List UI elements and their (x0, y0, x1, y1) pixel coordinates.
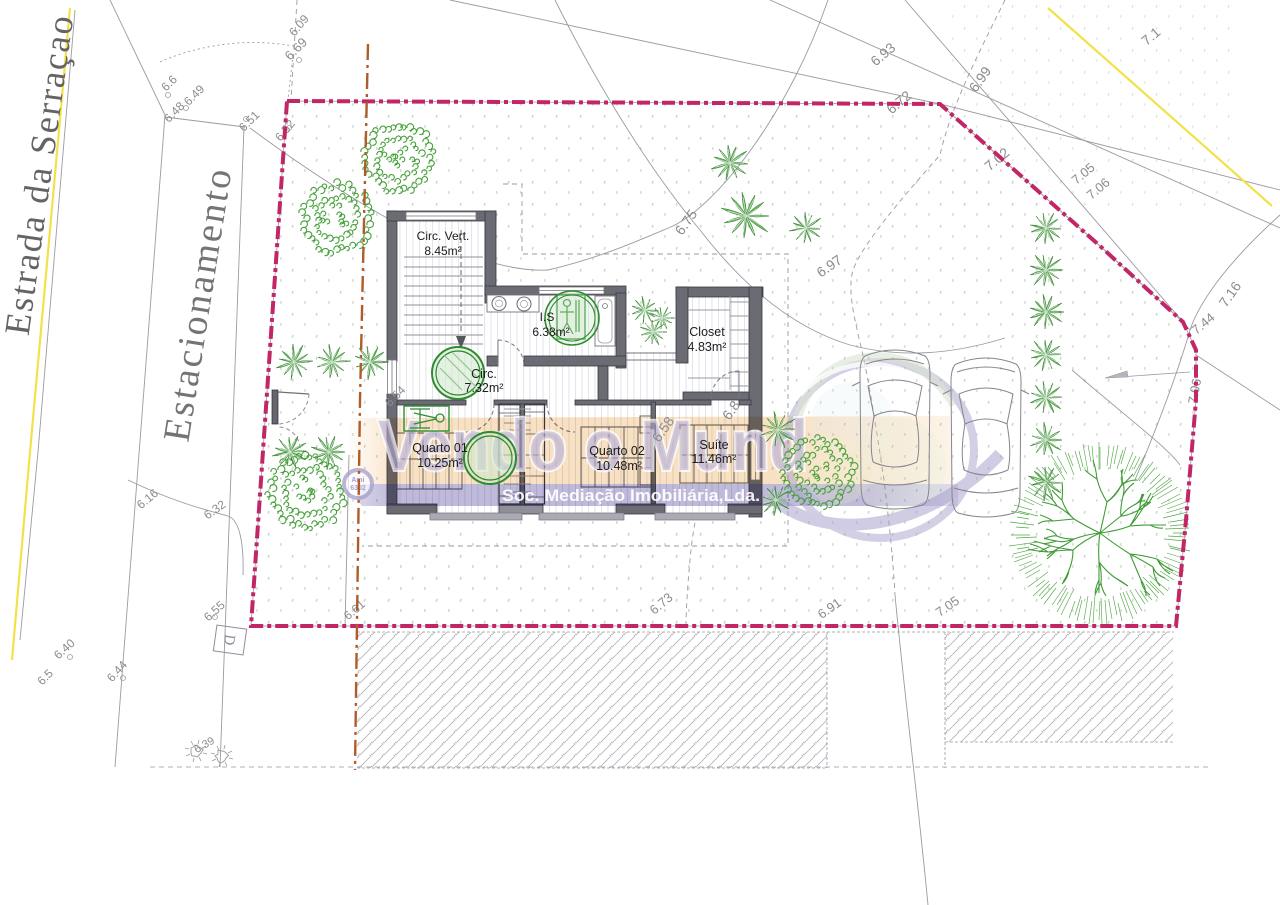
svg-text:10.48m²: 10.48m² (596, 459, 642, 473)
svg-text:Quarto 01: Quarto 01 (412, 441, 468, 455)
svg-text:I.S: I.S (540, 310, 555, 324)
svg-text:4.83m²: 4.83m² (688, 340, 727, 354)
svg-text:11.46m²: 11.46m² (692, 452, 737, 466)
svg-text:7.32m²: 7.32m² (465, 381, 504, 395)
svg-text:Suíte: Suíte (699, 438, 728, 452)
svg-text:Circ. Vert.: Circ. Vert. (417, 229, 470, 243)
svg-text:Closet: Closet (689, 325, 725, 339)
svg-text:Quarto 02: Quarto 02 (589, 444, 645, 458)
svg-text:Circ.: Circ. (471, 367, 497, 381)
svg-text:Soc. Mediação Imobiliária,Lda.: Soc. Mediação Imobiliária,Lda. (502, 486, 760, 505)
svg-text:10.25m²: 10.25m² (417, 456, 463, 470)
svg-text:8.45m²: 8.45m² (424, 244, 461, 258)
svg-text:6.38m²: 6.38m² (532, 325, 569, 339)
